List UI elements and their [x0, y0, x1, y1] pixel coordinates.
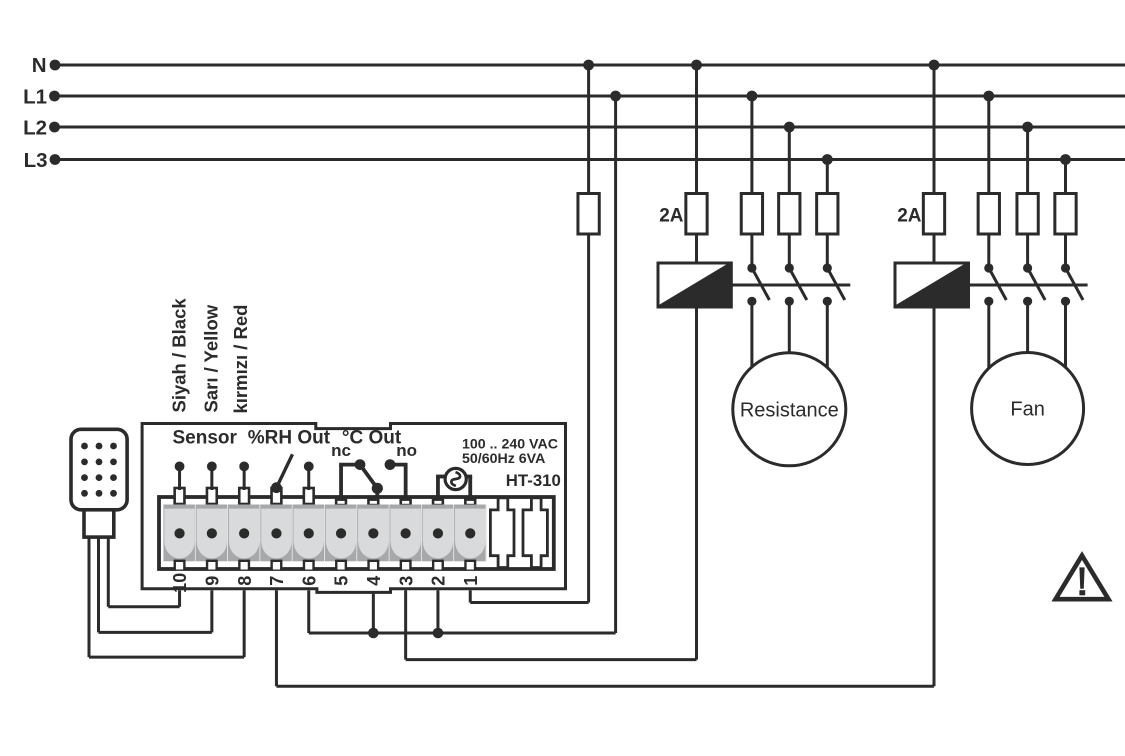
- svg-text:kırmızı / Red: kırmızı / Red: [230, 305, 251, 414]
- svg-text:1: 1: [461, 576, 481, 586]
- svg-text:Sensor: Sensor: [172, 428, 237, 449]
- svg-text:Sarı / Yellow: Sarı / Yellow: [201, 304, 222, 412]
- svg-text:N: N: [32, 54, 47, 77]
- svg-text:2A: 2A: [659, 206, 684, 227]
- svg-text:6: 6: [299, 576, 319, 586]
- svg-text:Resistance: Resistance: [740, 399, 839, 421]
- svg-text:9: 9: [202, 576, 222, 586]
- svg-text:nc: nc: [331, 441, 351, 460]
- svg-text:7: 7: [267, 576, 287, 586]
- svg-text:Siyah / Black: Siyah / Black: [168, 298, 189, 413]
- svg-text:no: no: [396, 441, 417, 460]
- svg-text:L3: L3: [24, 149, 48, 172]
- svg-text:L1: L1: [23, 85, 47, 108]
- svg-text:2A: 2A: [897, 206, 922, 227]
- svg-text:2: 2: [429, 576, 449, 586]
- svg-text:Fan: Fan: [1010, 399, 1044, 421]
- svg-text:%RH Out: %RH Out: [248, 428, 331, 449]
- svg-text:10: 10: [170, 573, 190, 593]
- svg-text:5: 5: [332, 576, 352, 586]
- svg-text:L2: L2: [23, 116, 47, 139]
- svg-text:4: 4: [364, 576, 384, 586]
- svg-text:HT-310: HT-310: [506, 471, 561, 490]
- svg-text:8: 8: [235, 576, 255, 586]
- svg-text:50/60Hz 6VA: 50/60Hz 6VA: [462, 451, 545, 467]
- svg-text:3: 3: [396, 576, 416, 586]
